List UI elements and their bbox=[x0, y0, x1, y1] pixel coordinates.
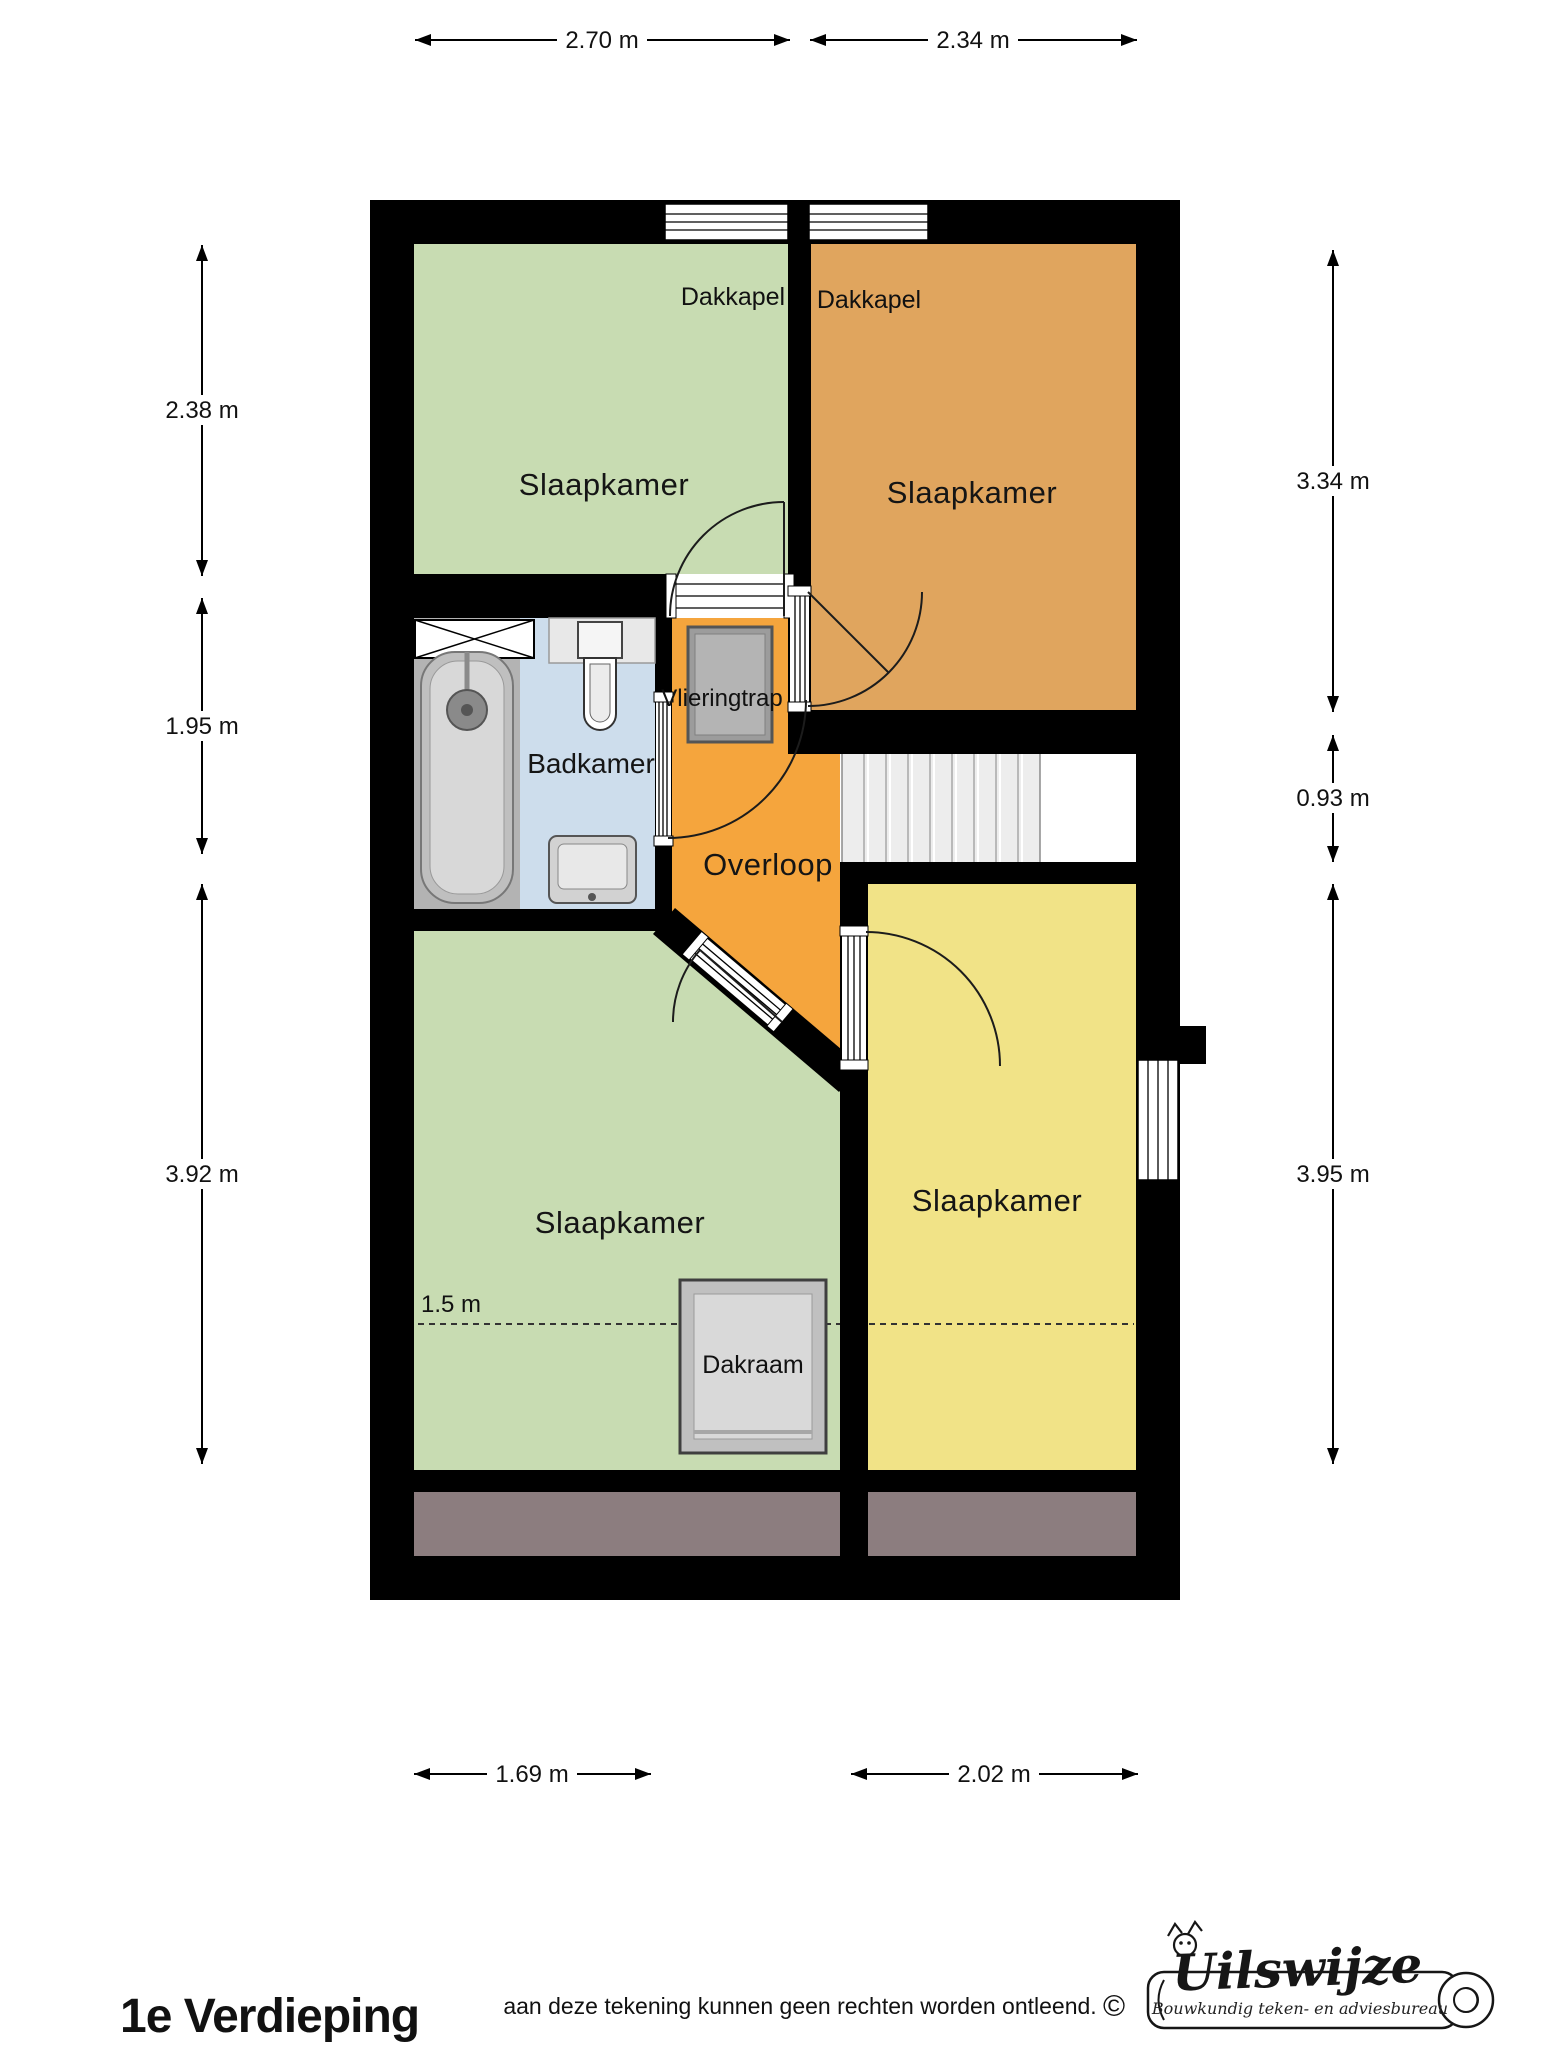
label-slaapkamer-bottom-left: Slaapkamer bbox=[535, 1205, 705, 1240]
wall-under-orange-room bbox=[811, 710, 1136, 754]
dim-top-1: 2.70 m bbox=[415, 25, 790, 55]
label-dakkapel-right: Dakkapel bbox=[817, 286, 921, 314]
room-slaapkamer-bottom-right bbox=[868, 884, 1136, 1470]
svg-text:3.34 m: 3.34 m bbox=[1296, 468, 1369, 495]
wall-outer-bottom bbox=[370, 1556, 1180, 1600]
wall-above-strip-left bbox=[414, 1470, 840, 1492]
page-title: 1e Verdieping bbox=[120, 1990, 419, 2043]
label-headroom-line: 1.5 m bbox=[421, 1291, 481, 1318]
company-logo: Uilswijze Bouwkundig teken- en adviesbur… bbox=[1148, 1922, 1493, 2028]
dakkapel-window-right bbox=[809, 204, 928, 240]
dim-left-3: 3.92 m bbox=[151, 884, 253, 1464]
floorplan-page: Slaapkamer Slaapkamer Slaapkamer Slaapka… bbox=[0, 0, 1555, 2048]
stair-landing bbox=[1040, 754, 1136, 862]
washbasin bbox=[549, 836, 636, 903]
copyright-symbol: © bbox=[1103, 1990, 1125, 2023]
logo-subtitle: Bouwkundig teken- en adviesbureau bbox=[1151, 1999, 1448, 2018]
logo-name: Uilswijze bbox=[1171, 1935, 1423, 2003]
label-dakkapel-left: Dakkapel bbox=[681, 283, 785, 311]
wall-outer-right bbox=[1136, 200, 1180, 1600]
label-badkamer: Badkamer bbox=[527, 748, 655, 779]
toilet bbox=[578, 622, 622, 730]
dim-bottom-1: 1.69 m bbox=[414, 1759, 651, 1789]
label-vlieringtrap: Vlieringtrap bbox=[661, 685, 782, 712]
label-slaapkamer-top-left: Slaapkamer bbox=[519, 467, 689, 502]
wall-under-stairs bbox=[840, 862, 1136, 884]
staircase bbox=[842, 754, 1136, 862]
floorplan-drawing: Slaapkamer Slaapkamer Slaapkamer Slaapka… bbox=[0, 0, 1555, 2048]
label-overloop: Overloop bbox=[703, 847, 833, 882]
wall-stub-right bbox=[1180, 1026, 1206, 1064]
label-slaapkamer-top-right: Slaapkamer bbox=[887, 475, 1057, 510]
attic-strip-right bbox=[868, 1492, 1136, 1556]
dim-left-2: 1.95 m bbox=[151, 598, 253, 854]
dim-right-2: 0.93 m bbox=[1282, 735, 1384, 862]
dakkapel-window-left bbox=[665, 204, 788, 240]
disclaimer-text: aan deze tekening kunnen geen rechten wo… bbox=[503, 1993, 1096, 2019]
svg-text:1.95 m: 1.95 m bbox=[165, 713, 238, 740]
svg-text:2.02 m: 2.02 m bbox=[957, 1761, 1030, 1788]
wall-above-strip-right bbox=[868, 1470, 1136, 1492]
svg-text:3.95 m: 3.95 m bbox=[1296, 1161, 1369, 1188]
attic-strip-left bbox=[414, 1492, 840, 1556]
stair-flight bbox=[842, 754, 1040, 862]
wall-badkamer-bottom bbox=[414, 909, 672, 931]
dim-right-1: 3.34 m bbox=[1282, 250, 1384, 712]
svg-text:3.92 m: 3.92 m bbox=[165, 1161, 238, 1188]
svg-text:2.70 m: 2.70 m bbox=[565, 27, 638, 54]
wall-outer-left bbox=[370, 200, 414, 1600]
wall-under-green-room bbox=[414, 574, 672, 618]
dim-top-2: 2.34 m bbox=[810, 25, 1137, 55]
svg-text:0.93 m: 0.93 m bbox=[1296, 785, 1369, 812]
label-slaapkamer-bottom-right: Slaapkamer bbox=[912, 1183, 1082, 1218]
label-dakraam: Dakraam bbox=[702, 1351, 803, 1379]
dim-bottom-2: 2.02 m bbox=[851, 1759, 1138, 1789]
footer: 1e Verdieping aan deze tekening kunnen g… bbox=[120, 1922, 1493, 2043]
side-window-right bbox=[1138, 1060, 1178, 1180]
dim-left-1: 2.38 m bbox=[151, 245, 253, 576]
svg-text:2.34 m: 2.34 m bbox=[936, 27, 1009, 54]
svg-text:2.38 m: 2.38 m bbox=[165, 397, 238, 424]
bathtub bbox=[421, 652, 513, 903]
svg-text:1.69 m: 1.69 m bbox=[495, 1761, 568, 1788]
dim-right-3: 3.95 m bbox=[1282, 884, 1384, 1464]
